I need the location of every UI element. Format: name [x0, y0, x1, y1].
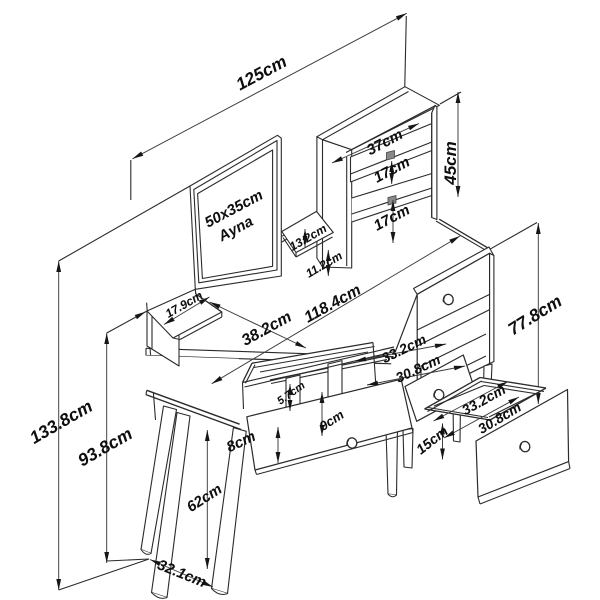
svg-text:45cm: 45cm — [441, 141, 460, 185]
